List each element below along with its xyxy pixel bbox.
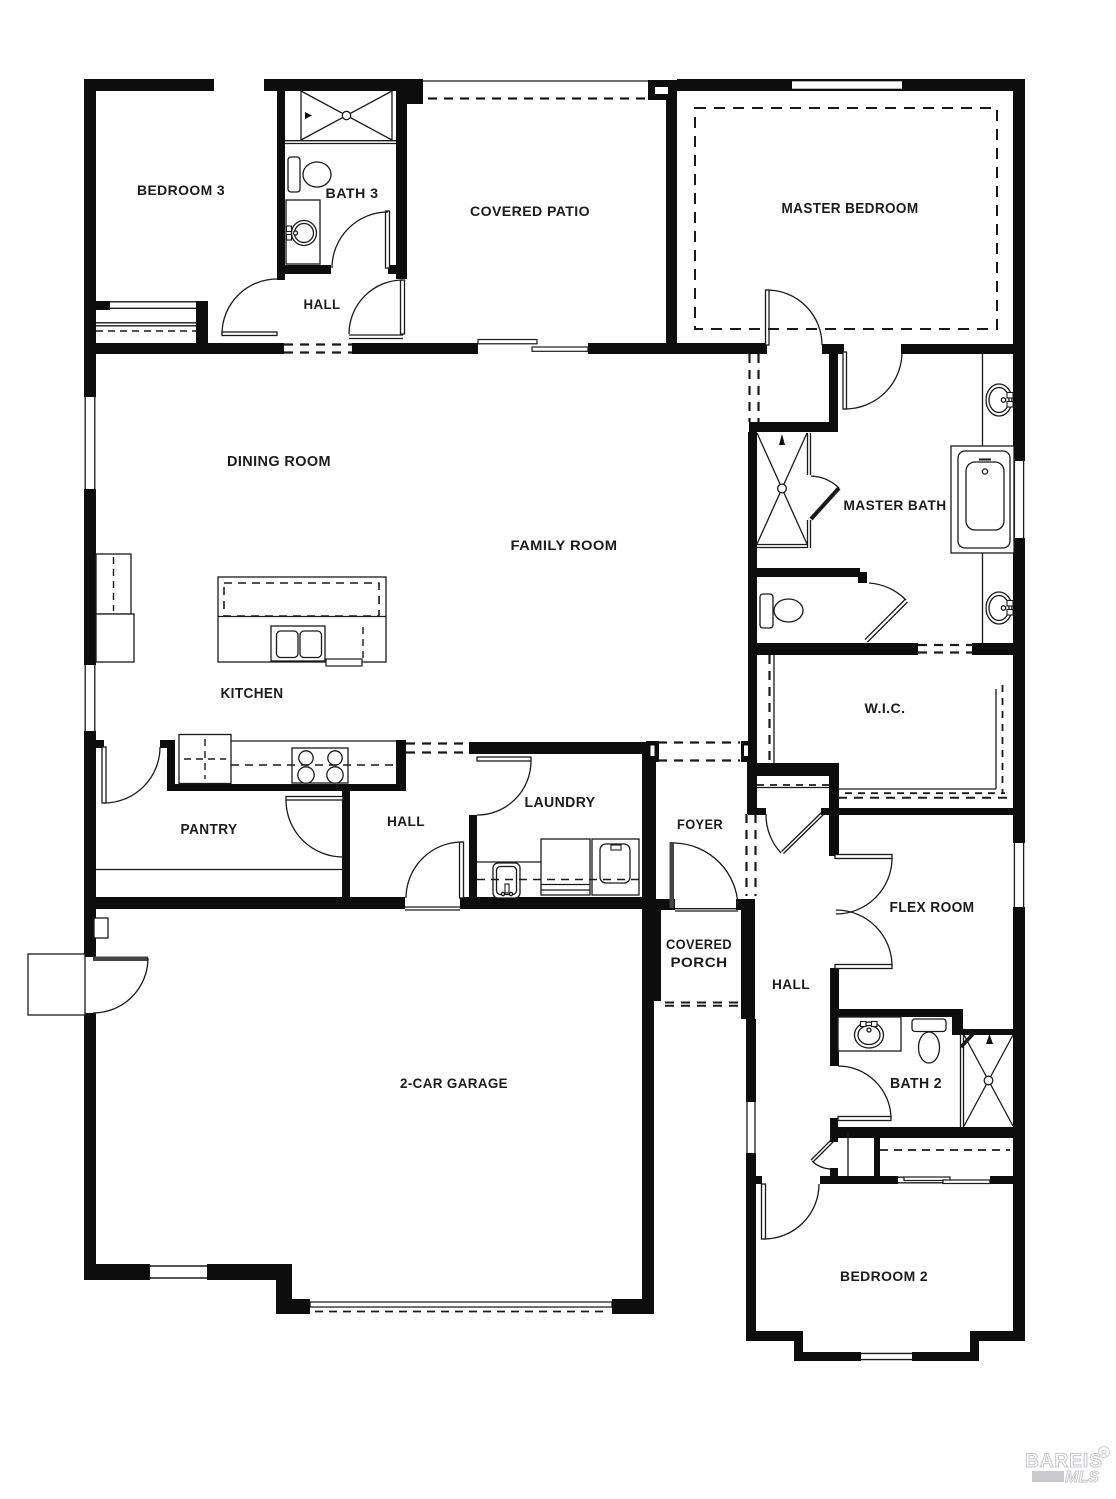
svg-text:HALL: HALL xyxy=(387,813,425,829)
svg-text:R: R xyxy=(1101,1449,1107,1458)
svg-text:DINING ROOM: DINING ROOM xyxy=(227,454,331,470)
svg-text:LAUNDRY: LAUNDRY xyxy=(525,795,596,811)
svg-text:HALL: HALL xyxy=(304,296,341,312)
svg-text:FOYER: FOYER xyxy=(677,816,723,832)
svg-text:BEDROOM 2: BEDROOM 2 xyxy=(840,1268,928,1284)
svg-text:BATH 3: BATH 3 xyxy=(326,185,379,201)
svg-text:2-CAR GARAGE: 2-CAR GARAGE xyxy=(400,1075,508,1091)
svg-text:MASTER BEDROOM: MASTER BEDROOM xyxy=(782,201,919,217)
svg-text:FAMILY ROOM: FAMILY ROOM xyxy=(511,537,618,553)
svg-text:W.I.C.: W.I.C. xyxy=(865,701,906,716)
svg-text:PORCH: PORCH xyxy=(671,954,728,970)
svg-text:PANTRY: PANTRY xyxy=(181,822,238,838)
svg-text:MLS: MLS xyxy=(1065,1469,1099,1486)
svg-text:BEDROOM 3: BEDROOM 3 xyxy=(137,182,225,198)
svg-text:BATH 2: BATH 2 xyxy=(890,1076,942,1092)
svg-text:HALL: HALL xyxy=(772,976,810,992)
svg-text:KITCHEN: KITCHEN xyxy=(221,686,284,702)
svg-text:COVERED PATIO: COVERED PATIO xyxy=(470,203,590,219)
svg-text:FLEX ROOM: FLEX ROOM xyxy=(890,900,975,916)
svg-text:MASTER BATH: MASTER BATH xyxy=(844,497,947,513)
svg-text:COVERED: COVERED xyxy=(666,936,732,952)
